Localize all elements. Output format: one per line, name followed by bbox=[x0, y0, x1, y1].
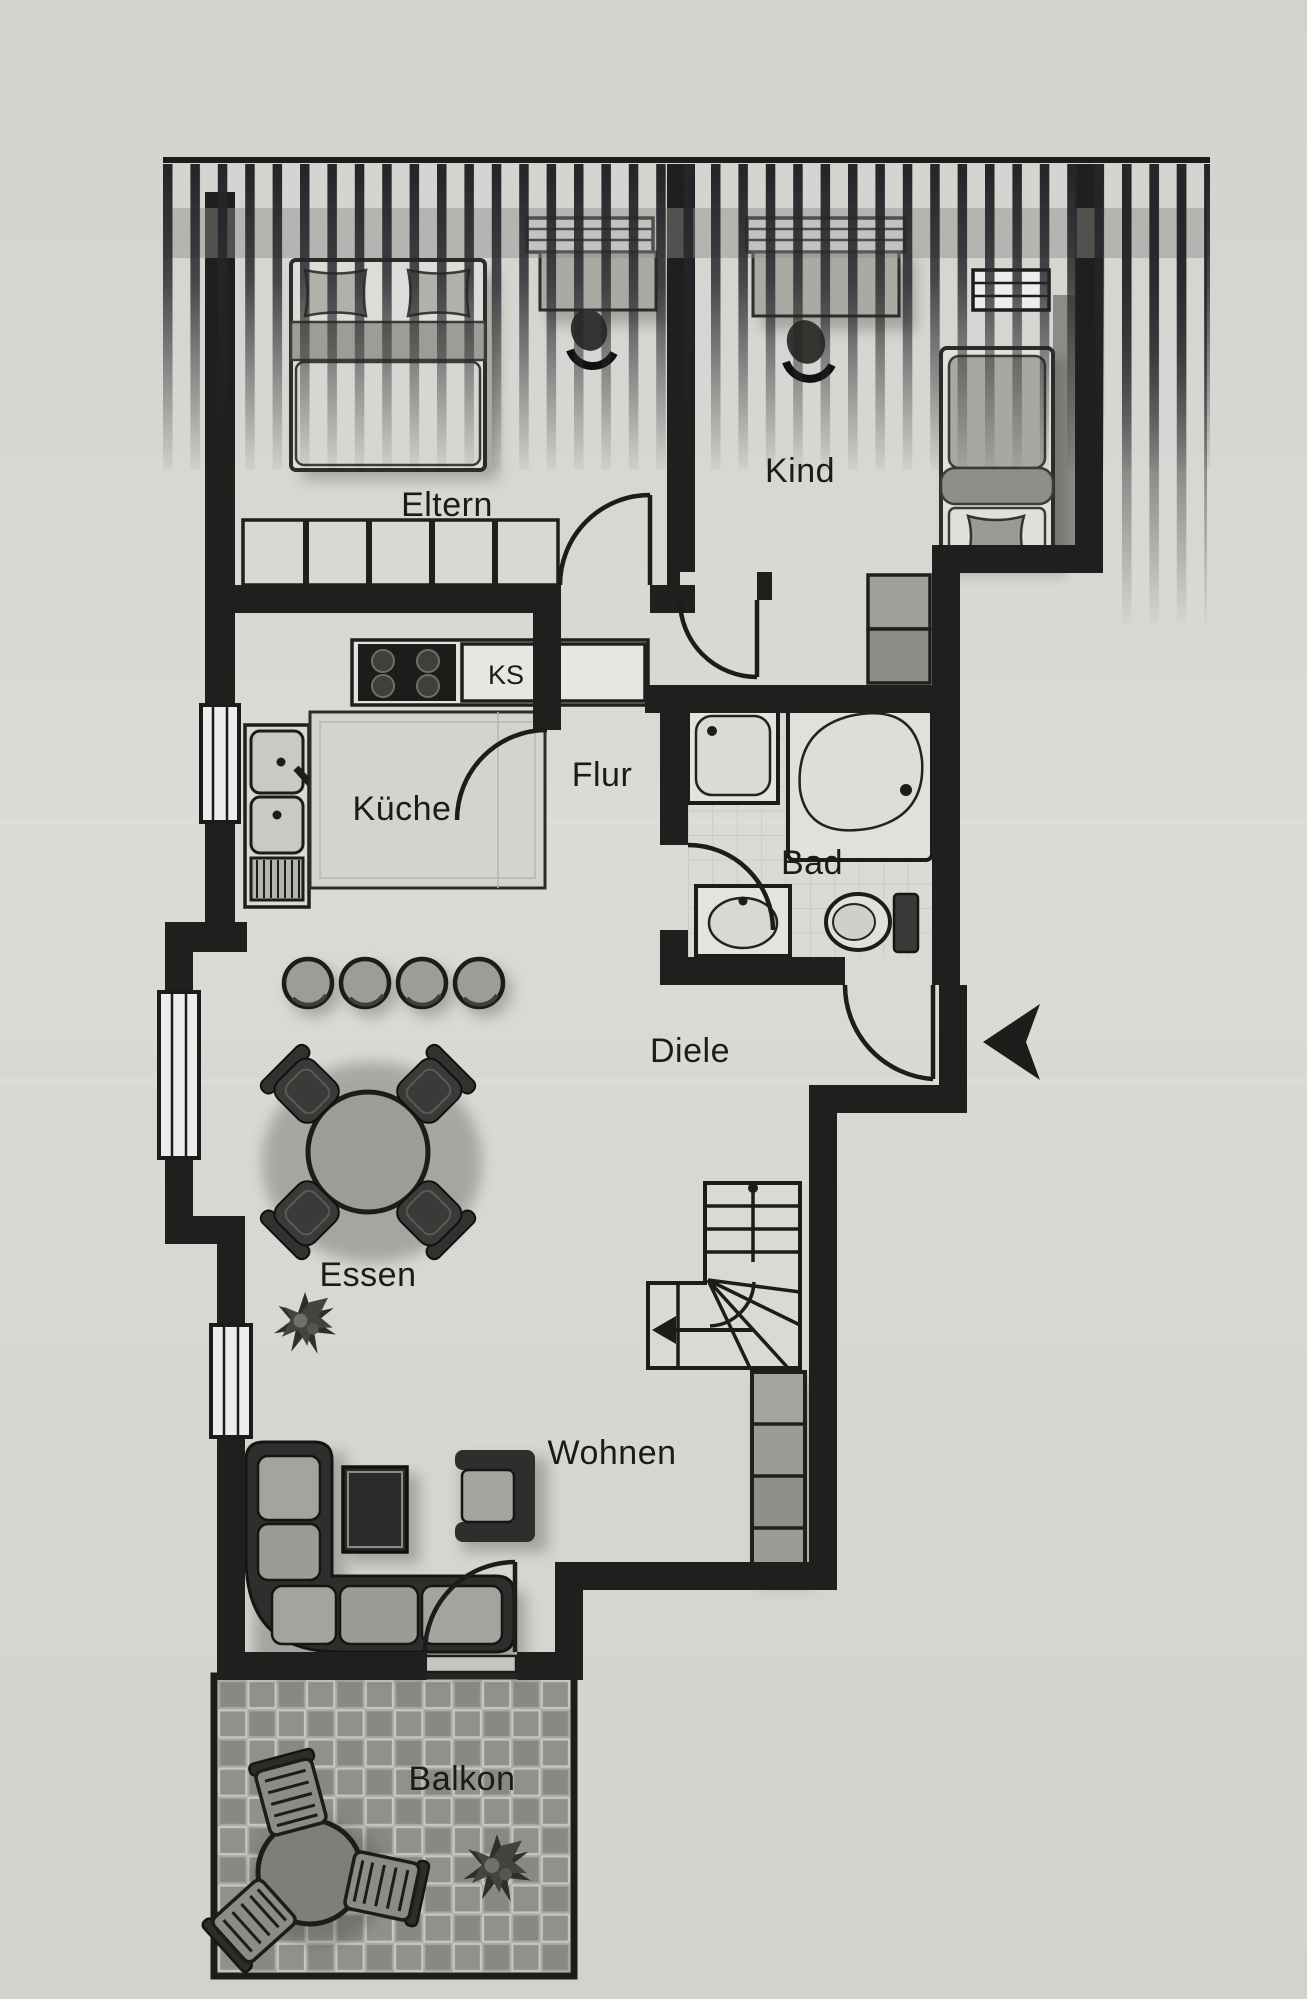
floor-plan-sheet: Eltern Kind Küche Flur Bad Diele Essen W… bbox=[0, 0, 1307, 1999]
wall-shelf-column bbox=[752, 1372, 805, 1580]
label-wohnen: Wohnen bbox=[547, 1434, 676, 1472]
coffee-table bbox=[343, 1467, 407, 1552]
label-kind: Kind bbox=[765, 452, 835, 490]
label-kueche: Küche bbox=[353, 790, 452, 828]
washbasin bbox=[696, 886, 790, 956]
window-dining bbox=[159, 992, 199, 1158]
counter-cell bbox=[556, 644, 645, 701]
floor-plan-drawing: Eltern Kind Küche Flur Bad Diele Essen W… bbox=[0, 0, 1307, 1999]
tub-faucet bbox=[900, 784, 912, 796]
toilet bbox=[826, 894, 918, 952]
label-fridge: KS bbox=[488, 660, 524, 690]
armchair bbox=[455, 1450, 535, 1542]
window-living bbox=[211, 1325, 251, 1437]
parents-wardrobe bbox=[243, 520, 558, 585]
label-essen: Essen bbox=[320, 1256, 417, 1294]
kitchen-sink-unit bbox=[245, 725, 314, 907]
drainboard bbox=[251, 858, 303, 900]
corner-bathtub bbox=[788, 708, 932, 860]
sink-basin bbox=[251, 797, 303, 853]
scan-band bbox=[0, 818, 1307, 824]
label-balkon: Balkon bbox=[409, 1760, 516, 1798]
label-flur: Flur bbox=[572, 756, 633, 794]
label-eltern: Eltern bbox=[401, 486, 493, 524]
window-kitchen bbox=[201, 705, 239, 822]
shower bbox=[688, 708, 778, 803]
label-bad: Bad bbox=[781, 844, 843, 882]
child-wardrobe bbox=[868, 575, 930, 683]
label-diele: Diele bbox=[650, 1032, 730, 1070]
stove bbox=[358, 644, 456, 701]
shower-drain bbox=[707, 726, 717, 736]
